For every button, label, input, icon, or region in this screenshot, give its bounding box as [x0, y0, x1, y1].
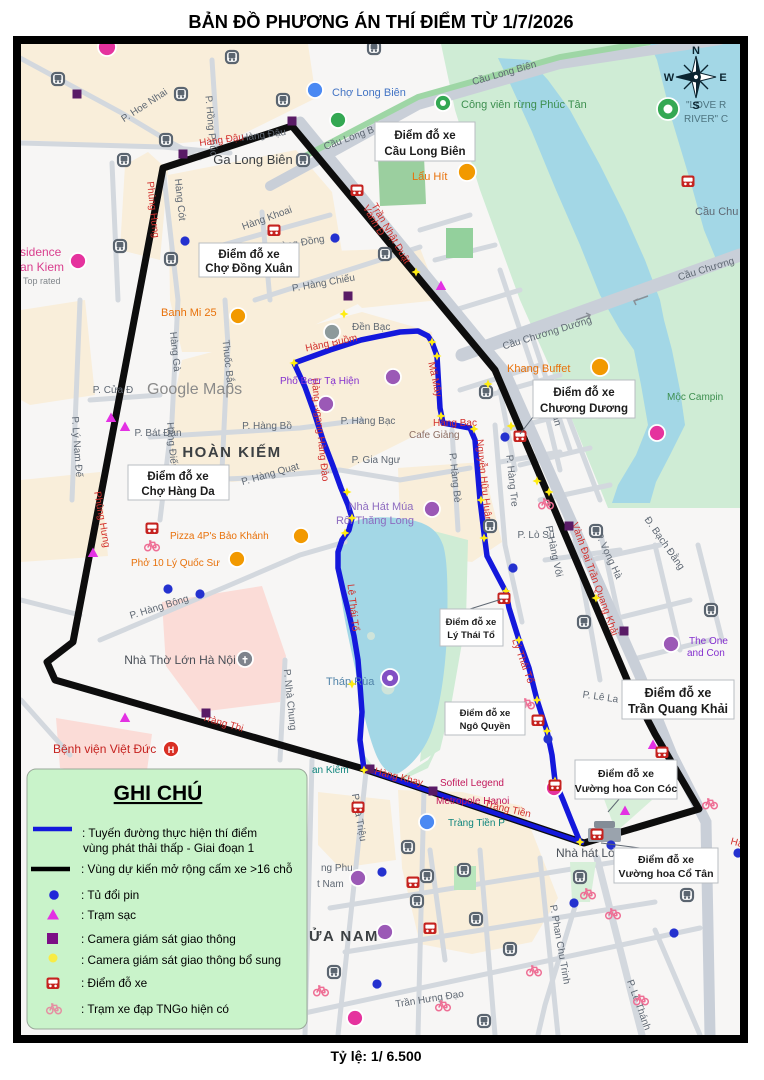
svg-text:BẢN ĐỒ PHƯƠNG ÁN THÍ ĐIỂM TỪ 1: BẢN ĐỒ PHƯƠNG ÁN THÍ ĐIỂM TỪ 1/7/2026 — [188, 11, 573, 32]
svg-text:✝: ✝ — [241, 655, 249, 665]
svg-text:: Tuyến đường thực hiện thí đi: : Tuyến đường thực hiện thí điểm — [82, 826, 257, 840]
svg-text:Đền Bạc: Đền Bạc — [352, 321, 390, 333]
svg-text:Tràng Tiền P: Tràng Tiền P — [448, 817, 505, 829]
svg-text:Cầu Chu: Cầu Chu — [695, 206, 738, 218]
svg-text:Vường hoa Con Cóc: Vường hoa Con Cóc — [575, 783, 678, 795]
svg-text:P. Hàng Bồ: P. Hàng Bồ — [242, 420, 292, 432]
svg-text:Bệnh viện Việt Đức: Bệnh viện Việt Đức — [53, 742, 156, 756]
svg-text:Phở 10 Lý Quốc Sư: Phở 10 Lý Quốc Sư — [131, 557, 220, 569]
svg-text:: Vùng dự kiến mở rộng cấm xe: : Vùng dự kiến mở rộng cấm xe >16 chỗ — [81, 862, 293, 876]
svg-text:Top rated: Top rated — [23, 276, 61, 286]
svg-text:: Tủ đổi pin: : Tủ đổi pin — [81, 888, 139, 902]
svg-text:Tháp Rùa: Tháp Rùa — [326, 676, 375, 688]
svg-text:and Con: and Con — [687, 648, 725, 659]
svg-text:Cầu Long Biên: Cầu Long Biên — [384, 146, 465, 158]
svg-text:E: E — [719, 72, 726, 84]
svg-text:-sidence: -sidence — [16, 245, 62, 259]
svg-text:H: H — [168, 745, 175, 755]
svg-text:t Nam: t Nam — [317, 879, 344, 890]
svg-text:GHI CHÚ: GHI CHÚ — [114, 781, 203, 805]
svg-text:Mộc Campin: Mộc Campin — [667, 392, 723, 403]
svg-text:Điểm đỗ xe: Điểm đỗ xe — [638, 853, 694, 866]
svg-text:Pizza 4P's Bảo Khánh: Pizza 4P's Bảo Khánh — [170, 531, 269, 542]
svg-text:: Camera giám sát giao thông b: : Camera giám sát giao thông bổ sung — [81, 953, 281, 967]
svg-text:Công viên rừng Phúc Tân: Công viên rừng Phúc Tân — [461, 99, 587, 111]
svg-text:Tỷ lệ: 1/ 6.500: Tỷ lệ: 1/ 6.500 — [330, 1048, 421, 1064]
svg-text:P. Lò Sũ: P. Lò Sũ — [517, 530, 554, 541]
svg-text:an Kiem: an Kiem — [20, 260, 64, 274]
svg-text:Cafe Giảng: Cafe Giảng — [409, 430, 460, 441]
svg-text:vùng phát thải thấp - Giai đoạ: vùng phát thải thấp - Giai đoạn 1 — [83, 841, 254, 855]
svg-text:Lẩu Hít: Lẩu Hít — [412, 171, 447, 183]
svg-text:Điểm đỗ xe: Điểm đỗ xe — [645, 685, 712, 700]
svg-text:P. Cửa Đ: P. Cửa Đ — [93, 384, 133, 396]
svg-text:Khang Buffet: Khang Buffet — [507, 363, 570, 375]
svg-text:ng Phu: ng Phu — [321, 863, 353, 874]
svg-text:S: S — [692, 100, 699, 112]
svg-text:P. Bát Đàn: P. Bát Đàn — [134, 428, 181, 439]
svg-text:N: N — [692, 45, 700, 57]
svg-text:Sofitel Legend: Sofitel Legend — [440, 778, 504, 789]
svg-text:Hàng Bạc: Hàng Bạc — [433, 418, 477, 429]
svg-text:Điểm đỗ xe: Điểm đỗ xe — [147, 470, 208, 483]
svg-text:an Kiếm: an Kiếm — [312, 764, 349, 776]
svg-text:Chương Dương: Chương Dương — [540, 403, 628, 415]
svg-text:Banh Mi 25: Banh Mi 25 — [161, 307, 217, 319]
svg-text:Chợ Hàng Da: Chợ Hàng Da — [141, 486, 215, 498]
svg-text:Ga Long Biên: Ga Long Biên — [213, 152, 293, 167]
svg-text:Metropole Hanoi: Metropole Hanoi — [436, 796, 509, 807]
svg-text:W: W — [664, 72, 675, 84]
svg-text:Lý Thái Tổ: Lý Thái Tổ — [447, 630, 495, 641]
svg-text:: Điểm đỗ xe: : Điểm đỗ xe — [81, 976, 148, 990]
svg-text:Phố Beer Tạ Hiện: Phố Beer Tạ Hiện — [280, 375, 359, 387]
svg-text:Nhà hát Lớ: Nhà hát Lớ — [556, 846, 616, 860]
svg-text:Ngô Quyền: Ngô Quyền — [460, 721, 511, 732]
svg-text:P. Gia Ngư: P. Gia Ngư — [352, 455, 401, 466]
svg-text:Chợ Đồng Xuân: Chợ Đồng Xuân — [205, 263, 292, 275]
svg-text:HOÀN KIẾM: HOÀN KIẾM — [182, 444, 281, 461]
svg-text:: Trạm xe đạp TNGo hiện có: : Trạm xe đạp TNGo hiện có — [81, 1002, 229, 1016]
svg-text:Trần Quang Khải: Trần Quang Khải — [628, 702, 728, 716]
svg-text:Điểm đỗ xe: Điểm đỗ xe — [460, 708, 511, 719]
svg-text:Điểm đỗ xe: Điểm đỗ xe — [598, 767, 654, 780]
svg-text:: Camera giám sát giao thông: : Camera giám sát giao thông — [81, 932, 236, 946]
svg-text:Google Maps: Google Maps — [147, 381, 242, 398]
svg-text:P. Hàng Bạc: P. Hàng Bạc — [341, 416, 396, 427]
svg-text:ỬA NAM: ỬA NAM — [309, 927, 379, 945]
svg-text:Điểm đỗ xe: Điểm đỗ xe — [394, 129, 455, 142]
svg-text:Vường hoa Cổ Tân: Vường hoa Cổ Tân — [619, 868, 714, 880]
svg-text:Rối Thăng Long: Rối Thăng Long — [336, 515, 414, 527]
svg-text:Nhà Thờ Lớn Hà Nội: Nhà Thờ Lớn Hà Nội — [124, 653, 236, 667]
svg-text:Điểm đỗ xe: Điểm đỗ xe — [218, 248, 279, 261]
svg-text:Điểm đỗ xe: Điểm đỗ xe — [446, 617, 497, 628]
svg-text:Nhà Hát Múa: Nhà Hát Múa — [349, 501, 415, 513]
svg-text:Chợ Long Biên: Chợ Long Biên — [332, 87, 406, 99]
svg-text:RIVER" C: RIVER" C — [684, 114, 728, 125]
svg-text:The One: The One — [689, 636, 728, 647]
svg-text:Điểm đỗ xe: Điểm đỗ xe — [553, 386, 614, 399]
svg-text:: Trạm sạc: : Trạm sạc — [81, 908, 136, 922]
